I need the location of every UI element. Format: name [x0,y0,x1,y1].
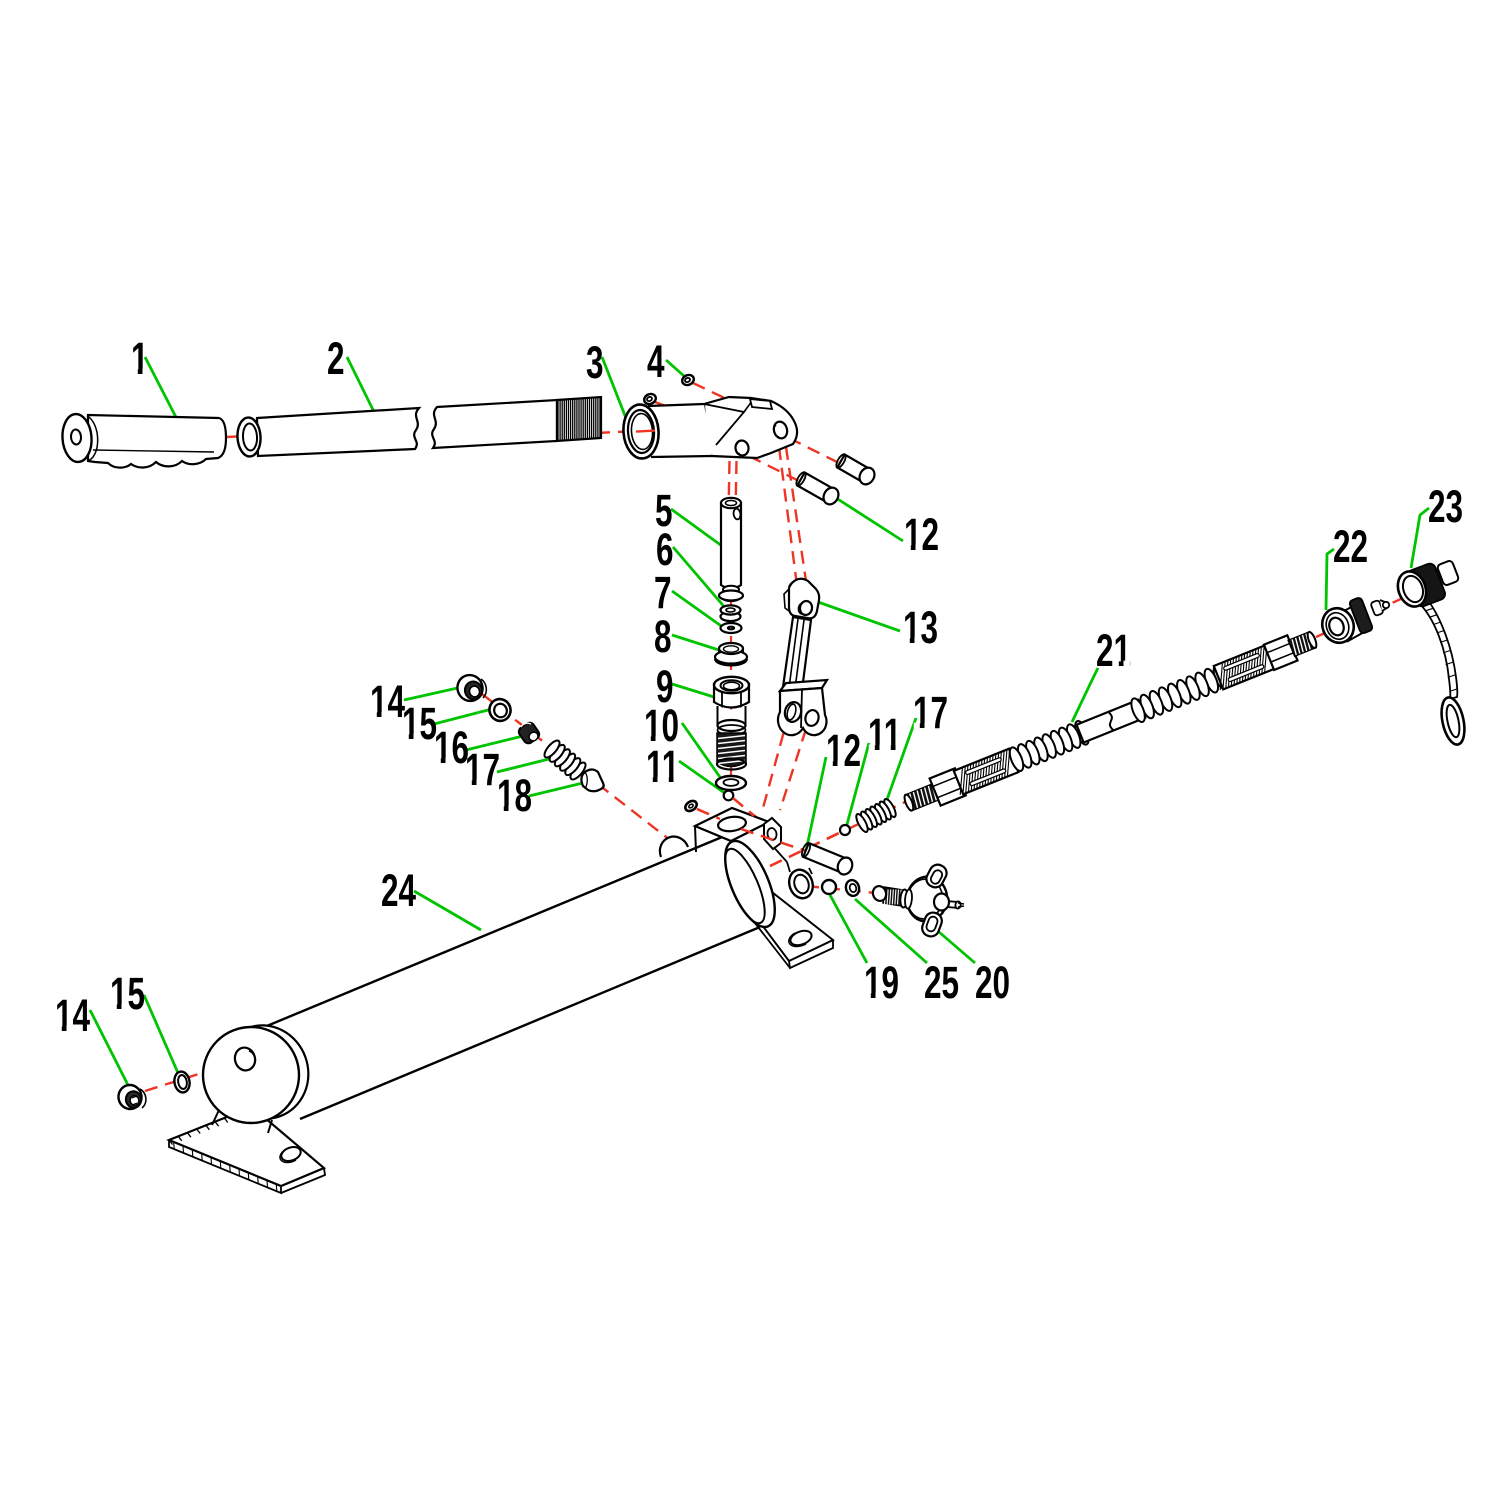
svg-text:16: 16 [434,724,469,774]
svg-text:14: 14 [55,992,90,1042]
svg-text:24: 24 [381,867,416,917]
svg-text:21: 21 [1096,627,1131,677]
svg-text:8: 8 [654,613,672,663]
svg-text:18: 18 [497,772,532,822]
svg-text:12: 12 [826,727,861,777]
svg-text:11: 11 [868,711,901,761]
svg-text:3: 3 [586,339,604,389]
svg-text:11: 11 [646,743,679,793]
svg-text:23: 23 [1428,483,1463,533]
svg-text:20: 20 [975,959,1010,1009]
svg-text:25: 25 [924,959,959,1009]
svg-text:13: 13 [903,604,938,654]
svg-text:14: 14 [370,678,405,728]
svg-text:2: 2 [327,335,345,385]
svg-text:15: 15 [402,700,437,750]
svg-text:4: 4 [647,338,665,388]
svg-text:22: 22 [1333,523,1368,573]
svg-text:17: 17 [465,746,500,796]
svg-text:17: 17 [913,689,948,739]
svg-text:15: 15 [110,970,145,1020]
svg-text:7: 7 [654,569,672,619]
svg-text:19: 19 [864,959,899,1009]
svg-text:12: 12 [904,511,939,561]
svg-text:1: 1 [131,335,149,385]
